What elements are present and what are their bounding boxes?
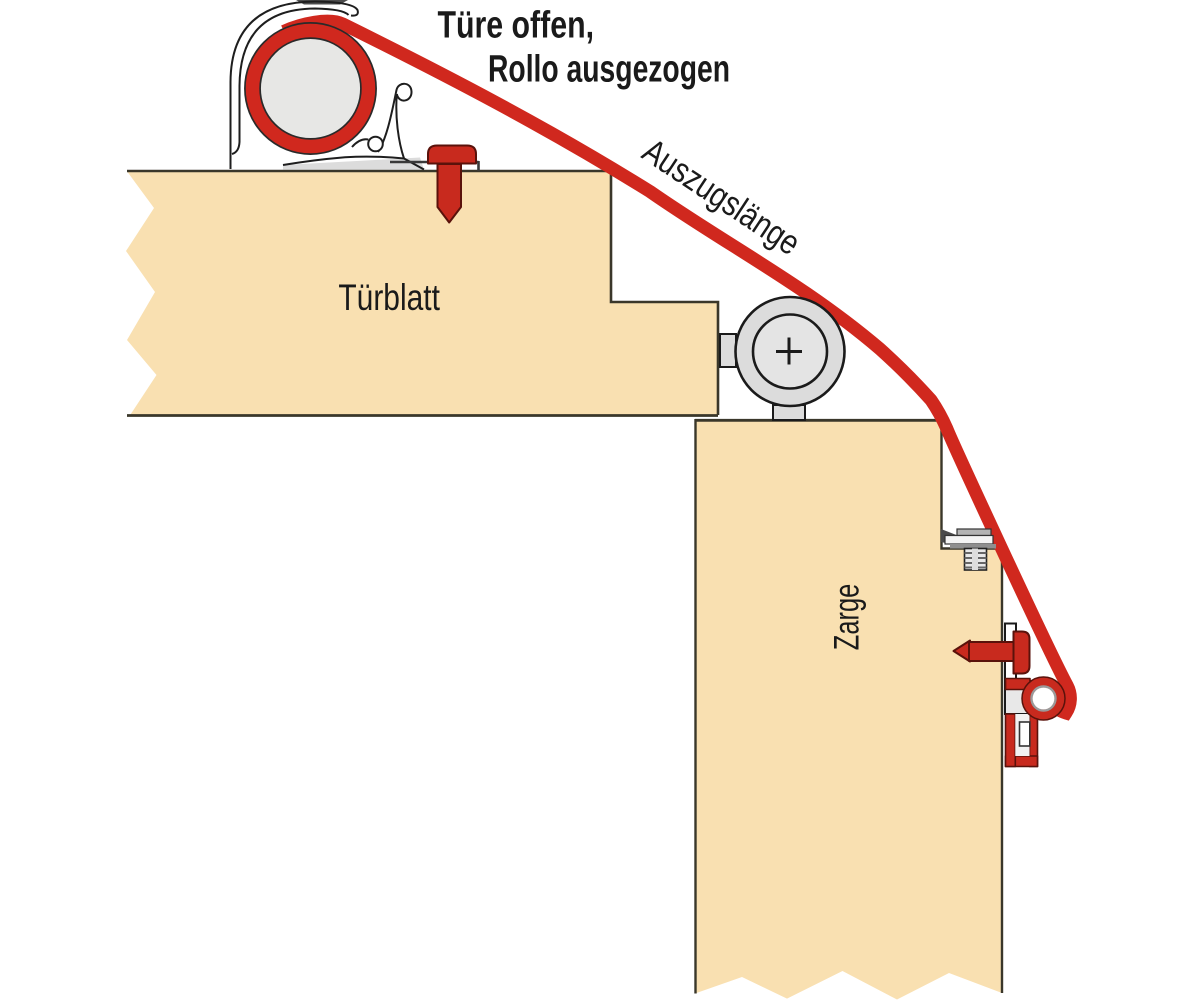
svg-text:Türe offen,: Türe offen, [438, 5, 595, 47]
svg-text:Türblatt: Türblatt [338, 276, 440, 318]
svg-text:Zarge: Zarge [828, 584, 867, 651]
svg-text:Rollo ausgezogen: Rollo ausgezogen [488, 49, 730, 91]
